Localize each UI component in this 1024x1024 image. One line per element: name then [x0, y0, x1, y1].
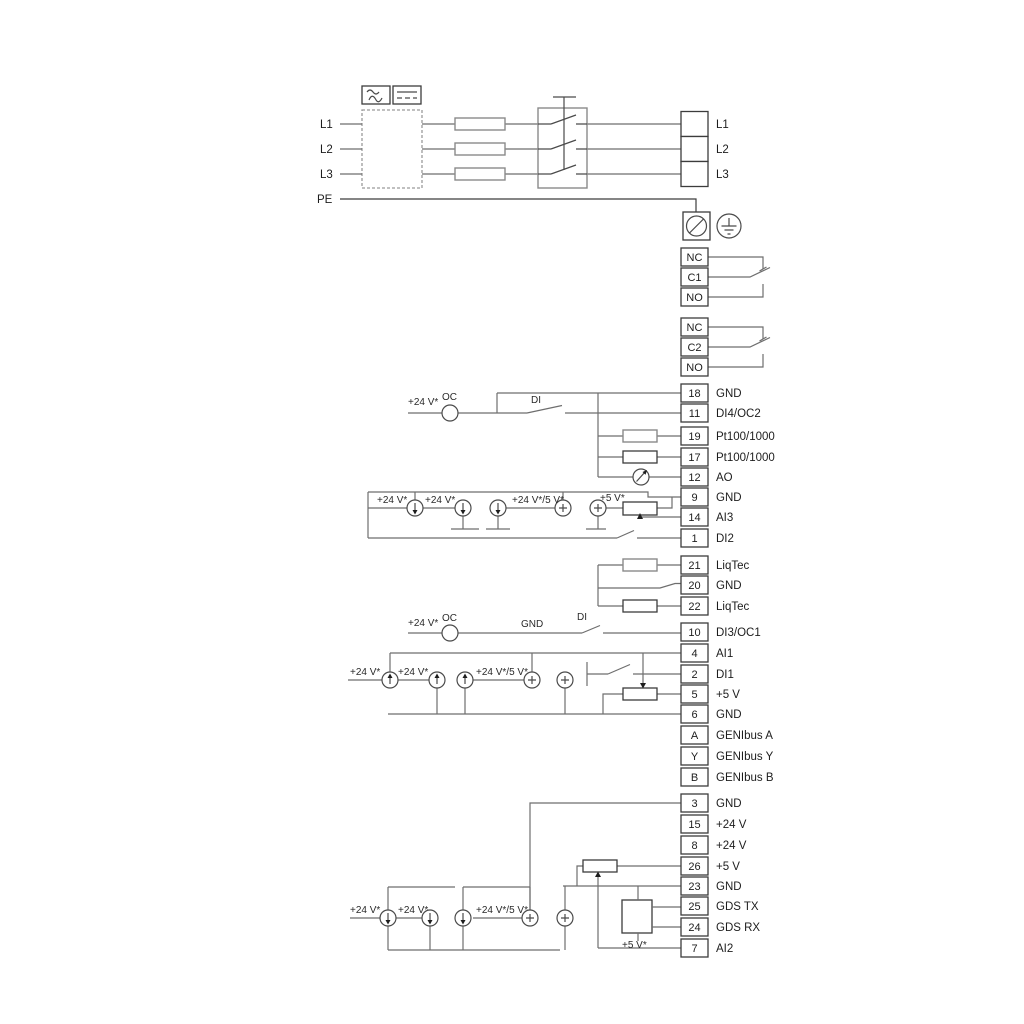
- terminal-cell: [681, 112, 708, 137]
- liqtec-resistor: [623, 600, 657, 612]
- power-label-l3: L3: [320, 169, 333, 181]
- terminal-number: B: [691, 772, 698, 784]
- terminal-number: 14: [688, 512, 700, 524]
- terminal-label: Pt100/1000: [716, 452, 775, 464]
- pt100-resistor: [623, 451, 657, 463]
- terminal-label: GENIbus Y: [716, 751, 774, 763]
- sensor-current-source-icon: [407, 500, 423, 516]
- terminal-label: GENIbus A: [716, 730, 773, 742]
- terminal-label: GND: [716, 388, 742, 400]
- relay2-contact: [708, 327, 770, 367]
- oc-sensor-icon: [442, 625, 458, 641]
- terminal-number: 22: [688, 601, 700, 613]
- di3-oc1-wiring: [408, 625, 681, 641]
- annotation-24v: +24 V*: [408, 397, 438, 408]
- terminal-number: 25: [688, 901, 700, 913]
- terminal-label: DI2: [716, 533, 734, 545]
- earth-icon: [717, 214, 741, 238]
- sensor-current-source-icon: [455, 910, 471, 926]
- terminal-label: DI4/OC2: [716, 408, 761, 420]
- terminal-label: AI3: [716, 512, 733, 524]
- annotation-5v: +5 V*: [622, 940, 647, 951]
- sensor-current-source-icon: [457, 672, 473, 688]
- terminal-number: 12: [688, 472, 700, 484]
- terminal-label: DI1: [716, 669, 734, 681]
- terminal-label: GDS RX: [716, 922, 760, 934]
- annotation-24v: +24 V*: [398, 667, 428, 678]
- annotation-24v: +24 V*: [408, 618, 438, 629]
- terminal-number: 19: [688, 431, 700, 443]
- liqtec-wiring: [598, 559, 681, 612]
- terminal-label: AI1: [716, 648, 733, 660]
- terminal-number: C2: [687, 342, 701, 354]
- power-label-l1: L1: [320, 119, 333, 131]
- sensor-current-source-icon: [429, 672, 445, 688]
- converter-box: [362, 110, 422, 188]
- ac-symbol: [362, 86, 390, 104]
- terminal-label: L3: [716, 169, 729, 181]
- oc-sensor-icon: [442, 405, 458, 421]
- annotation-di: DI: [577, 612, 587, 623]
- gds-sensor-box: [622, 886, 681, 941]
- fuse-l2: [455, 143, 505, 155]
- terminal-number: 24: [688, 922, 700, 934]
- annotation-24v-5v: +24 V*/5 V*: [476, 667, 528, 678]
- meter-icon: [633, 469, 649, 485]
- terminal-cell: [681, 137, 708, 162]
- terminal-number: C1: [687, 272, 701, 284]
- terminal-label: AO: [716, 472, 733, 484]
- terminal-label: +24 V: [716, 840, 747, 852]
- terminal-label: L1: [716, 119, 729, 131]
- ai1-sensor-group: [348, 653, 681, 714]
- bottom-wiring: [350, 803, 681, 950]
- terminal-number: 18: [688, 388, 700, 400]
- wiring-diagram: L1 L2 L3 PE: [0, 0, 1024, 1024]
- terminal-number: 6: [691, 709, 697, 721]
- terminal-label: GENIbus B: [716, 772, 774, 784]
- annotation-24v-5v: +24 V*/5 V*: [512, 495, 564, 506]
- contactor: [538, 97, 587, 188]
- annotation-24v: +24 V*: [350, 905, 380, 916]
- fuse-l3: [455, 168, 505, 180]
- sensor-plus-icon: [557, 910, 573, 926]
- dc-symbol: [393, 86, 421, 104]
- annotation-oc: OC: [442, 392, 457, 403]
- annotation-di: DI: [531, 395, 541, 406]
- annotation-24v: +24 V*: [350, 667, 380, 678]
- liqtec-resistor: [623, 559, 657, 571]
- annotation-24v-5v: +24 V*/5 V*: [476, 905, 528, 916]
- annotation-5v: +5 V*: [600, 493, 625, 504]
- power-label-pe: PE: [317, 194, 333, 206]
- terminal-number: NO: [686, 292, 703, 304]
- terminal-number: 10: [688, 627, 700, 639]
- terminal-label: AI2: [716, 943, 733, 955]
- fuse-l1: [455, 118, 505, 130]
- terminal-number: NO: [686, 362, 703, 374]
- relay1-contact: [708, 257, 770, 297]
- terminal-number: 7: [691, 943, 697, 955]
- sensor-current-source-icon: [382, 672, 398, 688]
- annotation-24v: +24 V*: [425, 495, 455, 506]
- potentiometer: [623, 683, 657, 700]
- terminal-label: GND: [716, 798, 742, 810]
- terminal-number: 15: [688, 819, 700, 831]
- terminal-label: DI3/OC1: [716, 627, 761, 639]
- terminal-number: 3: [691, 798, 697, 810]
- mains-wiring: [340, 124, 696, 212]
- terminal-cell: [681, 162, 708, 187]
- terminal-number: Y: [691, 751, 699, 763]
- terminal-label: Pt100/1000: [716, 431, 775, 443]
- terminal-number: 20: [688, 580, 700, 592]
- terminal-label: +5 V: [716, 861, 740, 873]
- terminal-label: GND: [716, 580, 742, 592]
- terminal-number: 23: [688, 881, 700, 893]
- terminal-number: 21: [688, 560, 700, 572]
- annotation-oc: OC: [442, 613, 457, 624]
- di4-oc2-wiring: [408, 393, 681, 485]
- terminal-label: +5 V: [716, 689, 740, 701]
- terminal-number: 17: [688, 452, 700, 464]
- sensor-current-source-icon: [380, 910, 396, 926]
- power-label-l2: L2: [320, 144, 333, 156]
- sensor-current-source-icon: [455, 500, 471, 516]
- terminal-number: 4: [691, 648, 697, 660]
- terminal-label: +24 V: [716, 819, 747, 831]
- terminal-number: 8: [691, 840, 697, 852]
- terminal-number: 2: [691, 669, 697, 681]
- terminal-number: NC: [687, 322, 703, 334]
- sensor-plus-icon: [557, 672, 573, 688]
- terminal-label: GND: [716, 492, 742, 504]
- terminal-number: 9: [691, 492, 697, 504]
- annotation-24v: +24 V*: [377, 495, 407, 506]
- annotation-24v: +24 V*: [398, 905, 428, 916]
- screw-terminal-icon: [683, 212, 710, 240]
- terminal-label: LiqTec: [716, 601, 749, 613]
- terminal-number: 26: [688, 861, 700, 873]
- terminal-number: 11: [689, 408, 700, 420]
- annotation-gnd: GND: [521, 619, 543, 630]
- terminal-label: LiqTec: [716, 560, 749, 572]
- terminal-number: 1: [691, 533, 697, 545]
- terminal-label: L2: [716, 144, 729, 156]
- terminal-label: GDS TX: [716, 901, 759, 913]
- potentiometer: [583, 860, 617, 877]
- diagram-canvas: L1 L2 L3 PE: [0, 0, 1024, 1024]
- terminal-label: GND: [716, 881, 742, 893]
- sensor-current-source-icon: [490, 500, 506, 516]
- pt100-resistor: [623, 430, 657, 442]
- terminal-label: GND: [716, 709, 742, 721]
- terminal-number: 5: [691, 689, 697, 701]
- terminal-number: A: [691, 730, 699, 742]
- terminal-number: NC: [687, 252, 703, 264]
